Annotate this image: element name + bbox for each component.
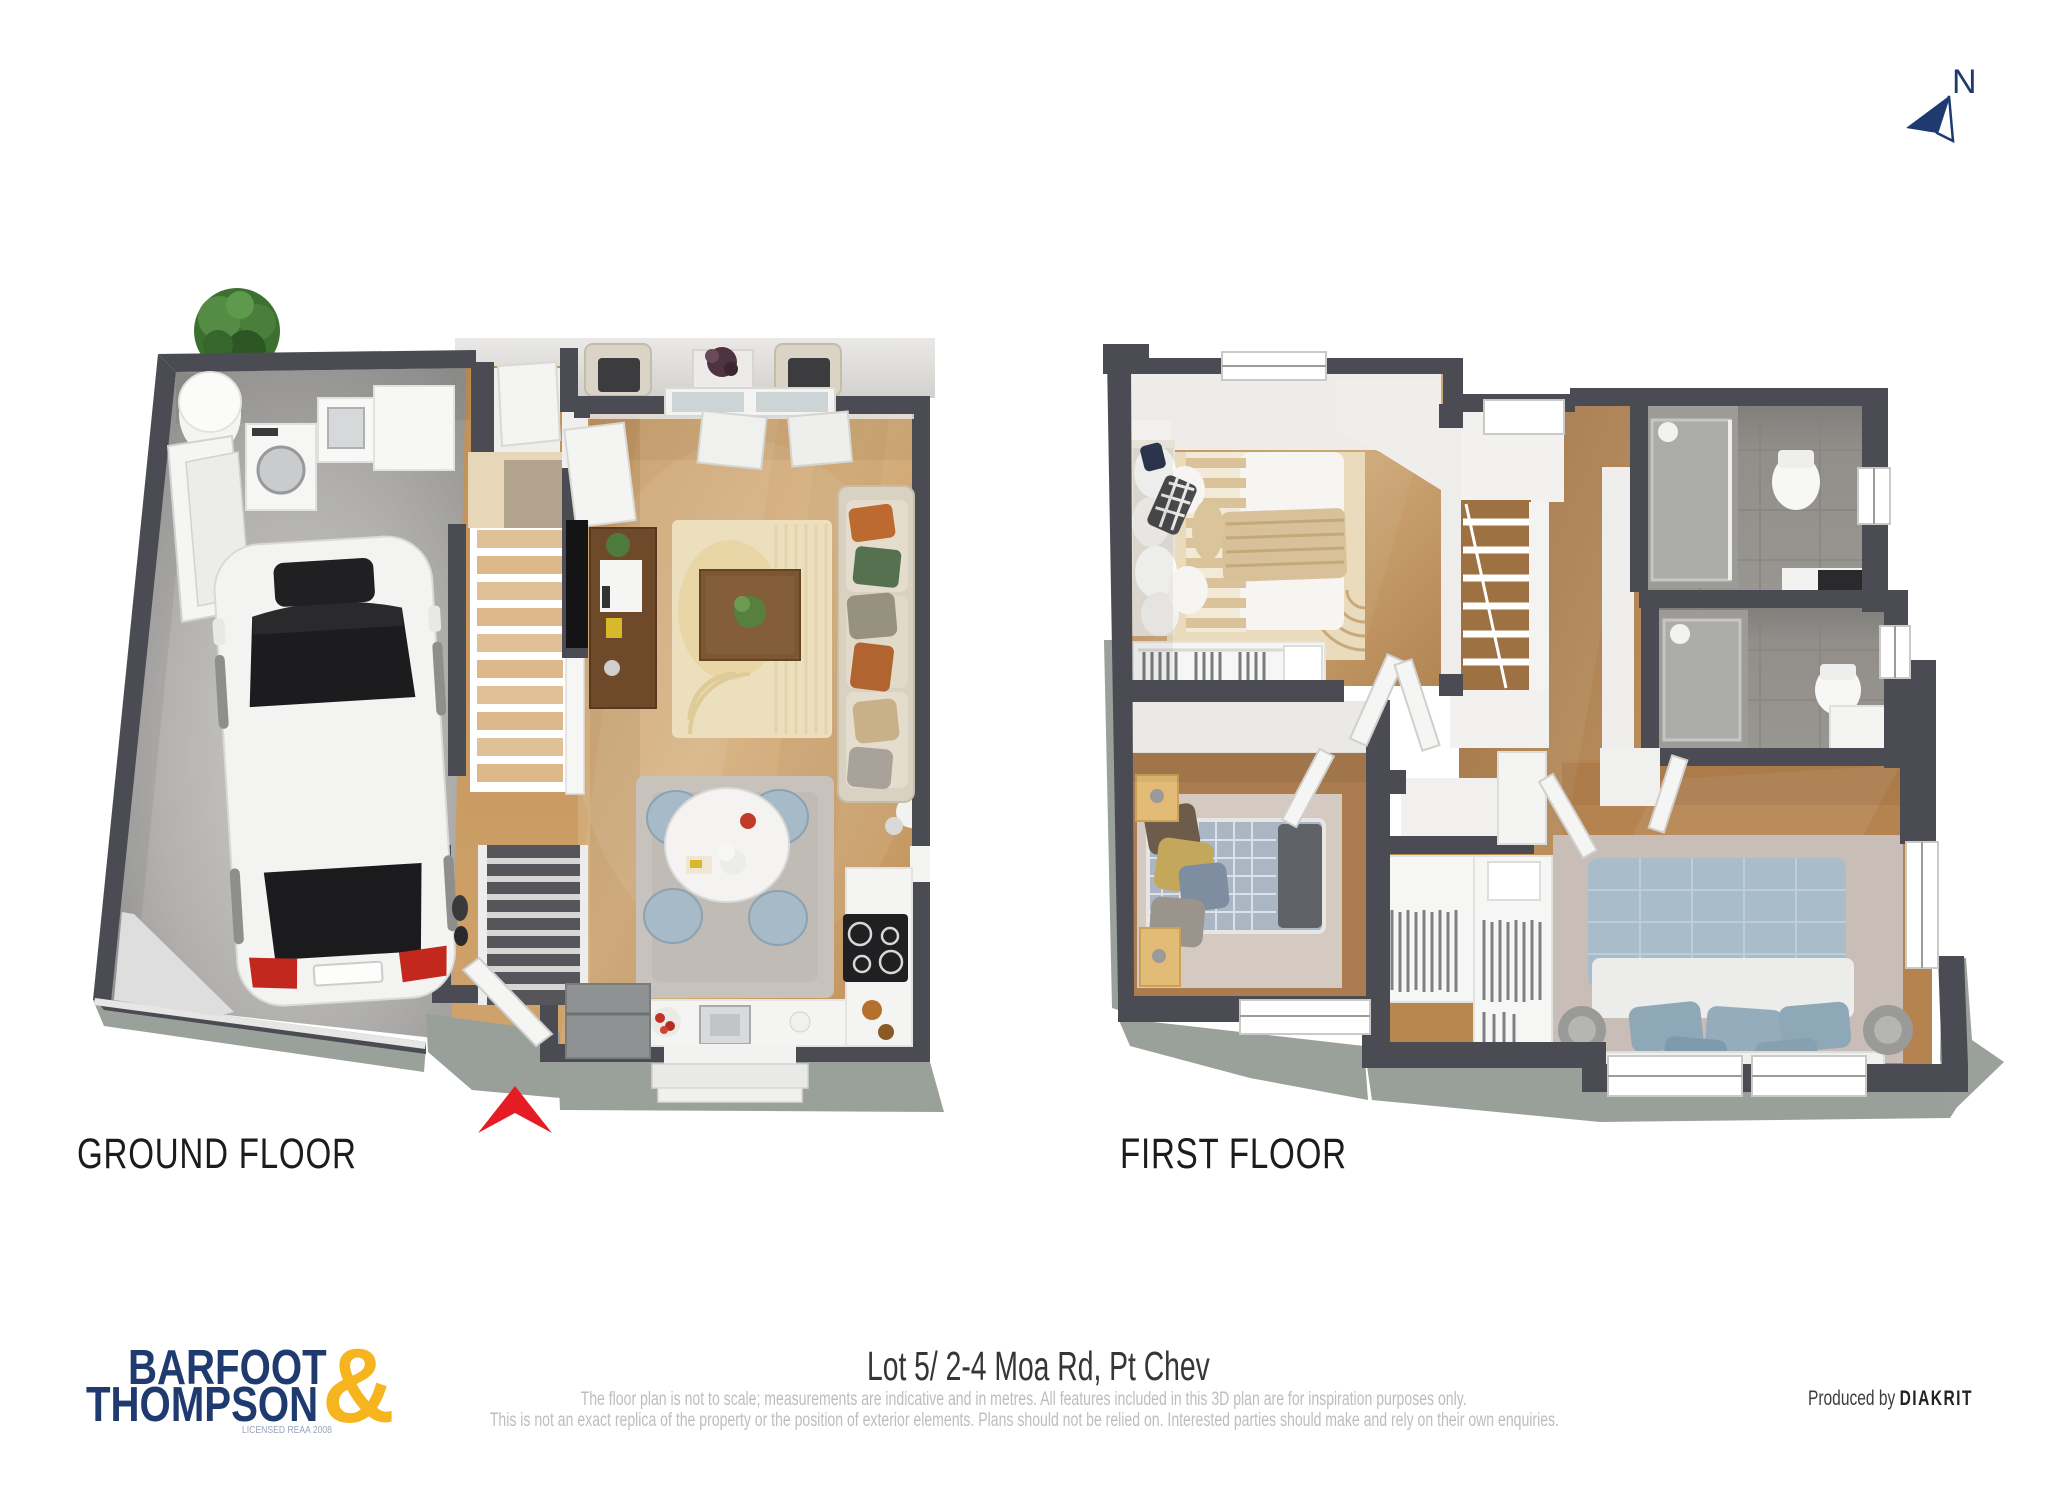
svg-text:N: N (1952, 63, 1977, 101)
